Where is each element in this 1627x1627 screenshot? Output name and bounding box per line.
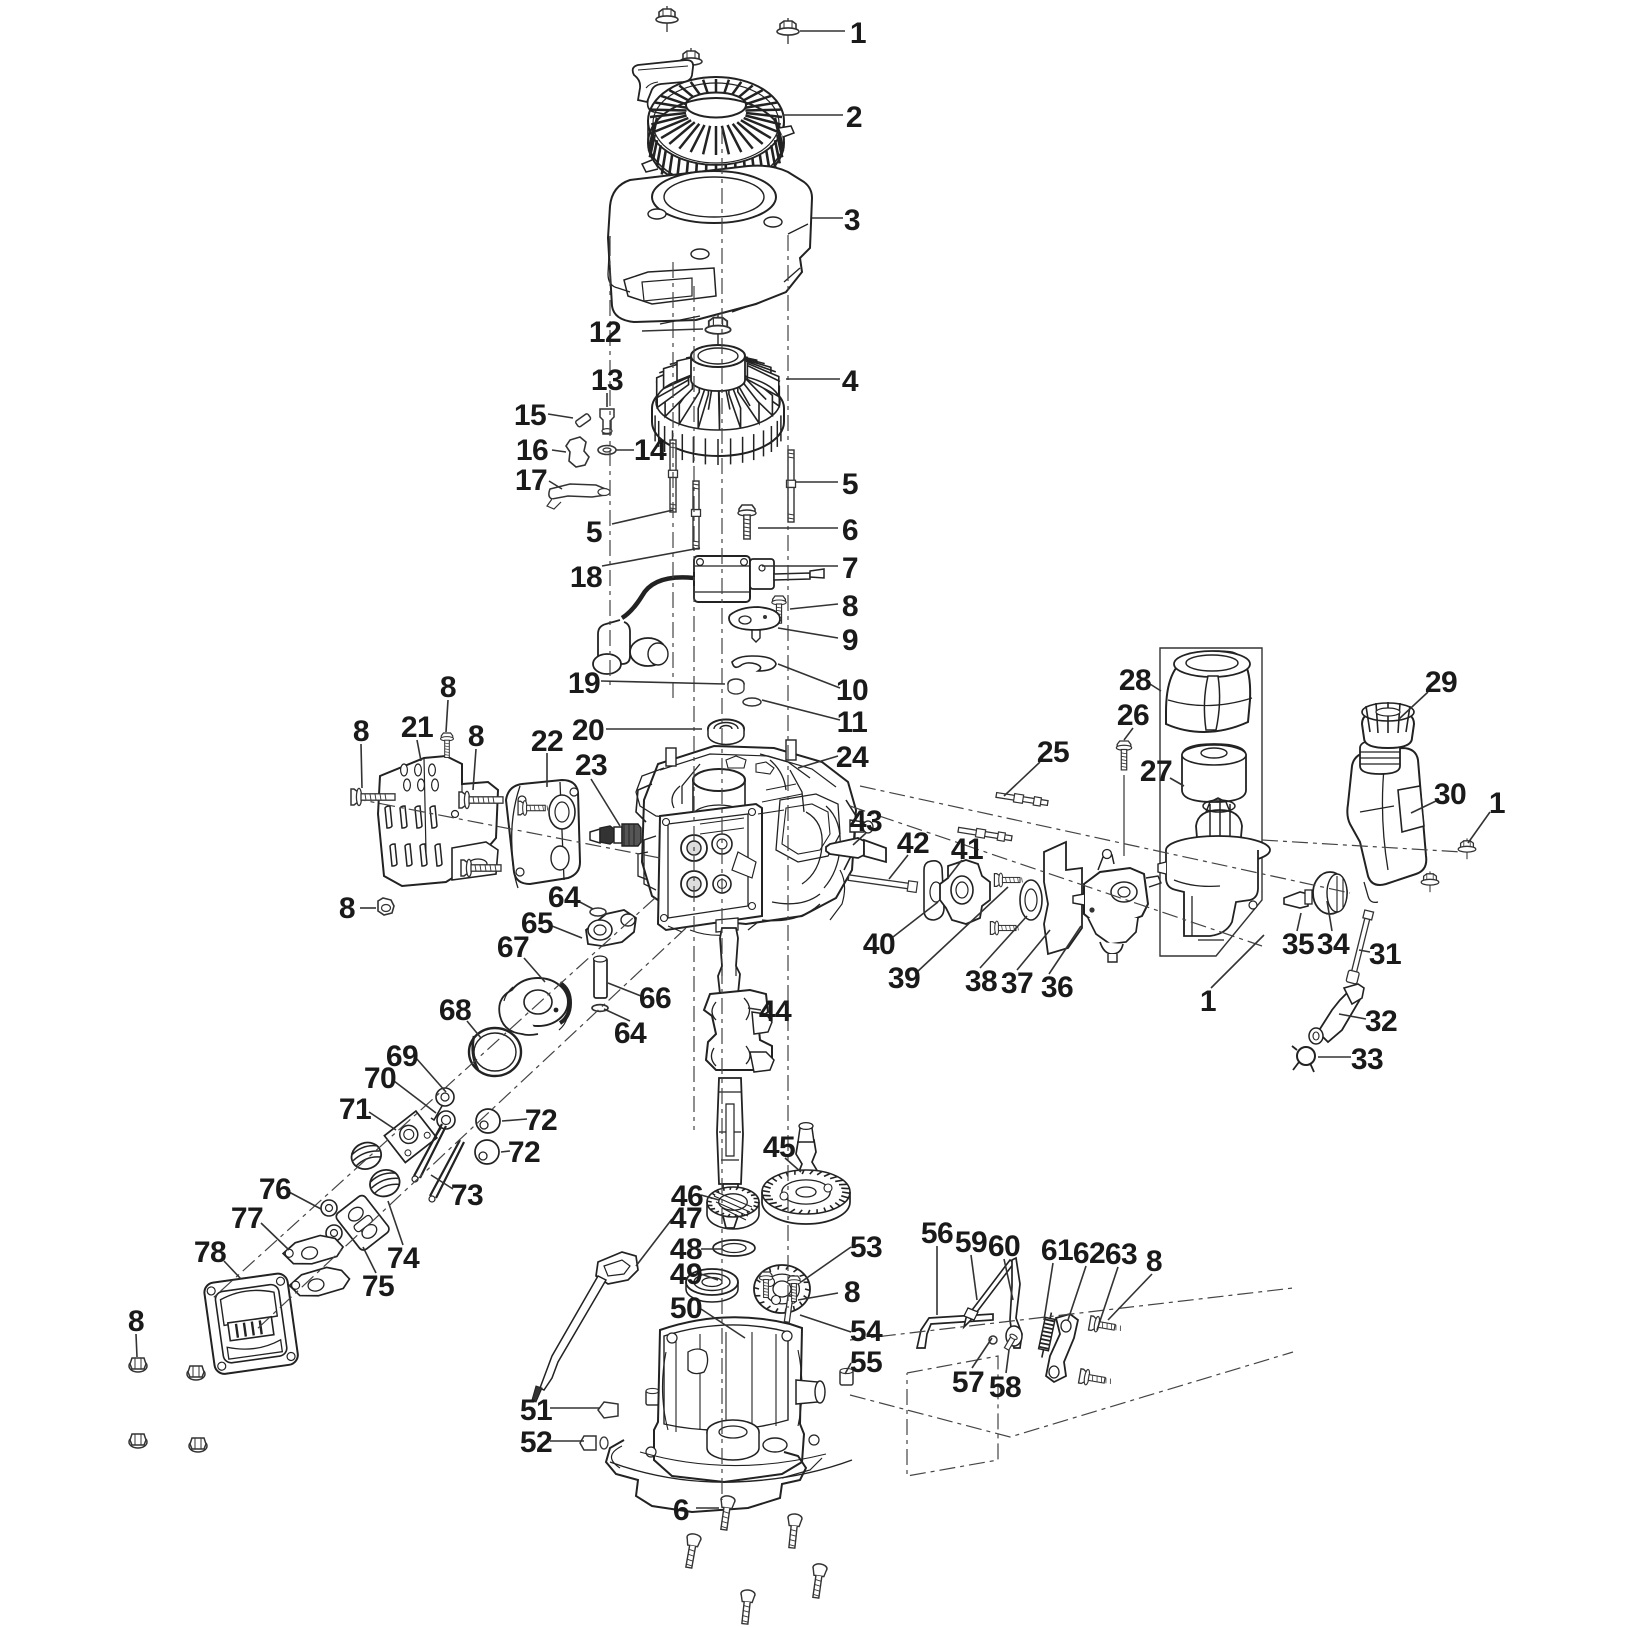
svg-text:7: 7: [842, 552, 858, 585]
svg-text:5: 5: [842, 468, 858, 501]
svg-text:32: 32: [1365, 1005, 1397, 1038]
svg-text:31: 31: [1369, 938, 1401, 971]
svg-text:8: 8: [468, 720, 484, 753]
svg-text:8: 8: [844, 1276, 860, 1309]
svg-text:73: 73: [451, 1179, 483, 1212]
svg-text:54: 54: [850, 1315, 883, 1348]
svg-text:33: 33: [1351, 1043, 1383, 1076]
svg-text:28: 28: [1119, 664, 1151, 697]
svg-text:25: 25: [1037, 736, 1069, 769]
svg-text:8: 8: [353, 715, 369, 748]
svg-text:43: 43: [850, 805, 882, 838]
svg-text:56: 56: [921, 1217, 953, 1250]
svg-text:22: 22: [531, 725, 563, 758]
svg-text:55: 55: [850, 1346, 882, 1379]
svg-text:45: 45: [763, 1131, 795, 1164]
svg-text:4: 4: [842, 365, 859, 398]
svg-text:60: 60: [988, 1230, 1020, 1263]
svg-text:10: 10: [836, 674, 868, 707]
svg-text:78: 78: [194, 1236, 226, 1269]
svg-text:62: 62: [1073, 1237, 1105, 1270]
svg-text:58: 58: [989, 1371, 1021, 1404]
svg-text:40: 40: [863, 928, 895, 961]
svg-text:19: 19: [568, 667, 600, 700]
svg-text:6: 6: [842, 514, 858, 547]
svg-text:15: 15: [514, 399, 546, 432]
svg-text:26: 26: [1117, 699, 1149, 732]
svg-text:76: 76: [259, 1173, 291, 1206]
svg-text:61: 61: [1041, 1234, 1073, 1267]
svg-text:47: 47: [670, 1202, 702, 1235]
svg-text:53: 53: [850, 1231, 882, 1264]
svg-text:36: 36: [1041, 971, 1073, 1004]
svg-text:8: 8: [339, 892, 355, 925]
svg-text:1: 1: [1489, 787, 1505, 820]
svg-text:64: 64: [614, 1017, 647, 1050]
svg-text:50: 50: [670, 1292, 702, 1325]
svg-text:57: 57: [952, 1366, 984, 1399]
svg-text:9: 9: [842, 624, 858, 657]
svg-text:1: 1: [850, 17, 866, 50]
svg-text:41: 41: [951, 833, 983, 866]
svg-text:30: 30: [1434, 778, 1466, 811]
svg-text:8: 8: [128, 1305, 144, 1338]
svg-text:37: 37: [1001, 967, 1033, 1000]
svg-text:8: 8: [1146, 1245, 1162, 1278]
svg-text:68: 68: [439, 994, 471, 1027]
svg-text:29: 29: [1425, 666, 1457, 699]
svg-text:67: 67: [497, 931, 529, 964]
svg-text:27: 27: [1140, 755, 1172, 788]
svg-text:5: 5: [586, 516, 602, 549]
svg-text:3: 3: [844, 204, 860, 237]
svg-text:18: 18: [570, 561, 602, 594]
svg-text:24: 24: [836, 741, 869, 774]
svg-text:34: 34: [1317, 928, 1350, 961]
svg-text:17: 17: [515, 464, 547, 497]
svg-text:51: 51: [520, 1394, 552, 1427]
svg-text:8: 8: [440, 671, 456, 704]
svg-text:77: 77: [231, 1202, 263, 1235]
svg-text:39: 39: [888, 962, 920, 995]
svg-text:71: 71: [339, 1093, 371, 1126]
svg-text:38: 38: [965, 965, 997, 998]
svg-text:42: 42: [897, 827, 929, 860]
svg-text:75: 75: [362, 1270, 394, 1303]
svg-text:49: 49: [670, 1258, 702, 1291]
svg-text:72: 72: [508, 1136, 540, 1169]
svg-text:11: 11: [837, 706, 868, 739]
svg-text:16: 16: [516, 434, 548, 467]
svg-text:13: 13: [591, 364, 623, 397]
svg-text:66: 66: [639, 982, 671, 1015]
svg-text:6: 6: [673, 1494, 689, 1527]
svg-text:59: 59: [955, 1226, 987, 1259]
svg-text:14: 14: [634, 434, 667, 467]
svg-text:44: 44: [759, 995, 792, 1028]
svg-text:35: 35: [1282, 928, 1314, 961]
svg-text:12: 12: [589, 316, 621, 349]
svg-text:1: 1: [1200, 985, 1216, 1018]
svg-text:2: 2: [846, 101, 862, 134]
svg-text:8: 8: [842, 590, 858, 623]
svg-text:23: 23: [575, 749, 607, 782]
svg-text:52: 52: [520, 1426, 552, 1459]
svg-text:21: 21: [401, 711, 433, 744]
svg-text:20: 20: [572, 714, 604, 747]
svg-text:63: 63: [1105, 1238, 1137, 1271]
svg-text:72: 72: [525, 1104, 557, 1137]
svg-text:70: 70: [364, 1062, 396, 1095]
